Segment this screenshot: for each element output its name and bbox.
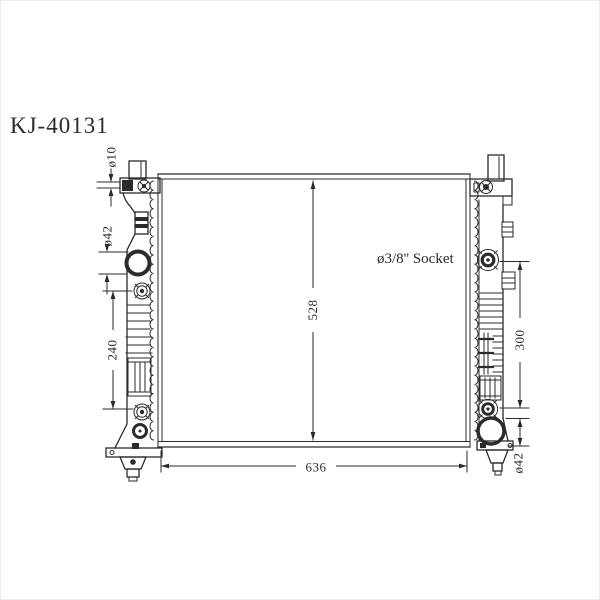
outlet-port-ring [478, 418, 504, 444]
dim-pin-diameter: ø10 [97, 147, 119, 207]
right-oil-cooler [480, 376, 501, 400]
left-upper-socket-fitting [134, 283, 150, 299]
inlet-port-ring [127, 252, 150, 275]
left-mounting-pin [129, 161, 146, 179]
dim-core-height-label: 528 [305, 300, 320, 321]
left-foot-drain-plug [106, 448, 162, 481]
right-tank [470, 155, 515, 475]
right-tank-ribs [479, 293, 502, 329]
radiator-technical-drawing: ø10 ø42 240 [0, 0, 600, 600]
left-upper-stub-fitting [135, 212, 148, 234]
socket-annotation: ø3/8'' Socket [377, 251, 454, 267]
dim-right-span-label: 300 [512, 330, 527, 351]
right-mounting-bracket [470, 155, 512, 205]
left-drain-sensor [132, 425, 147, 450]
right-lower-socket-fitting [478, 399, 497, 418]
socket-fitting-3-8 [478, 250, 499, 271]
part-number-label: KJ-40131 [10, 113, 109, 138]
dim-outlet-diameter: ø42 [506, 419, 529, 474]
right-mounting-pin [488, 155, 504, 181]
dim-overall-width-label: 636 [306, 460, 327, 475]
right-tank-center-detail [479, 333, 502, 374]
dim-left-span-label: 240 [105, 340, 120, 361]
left-bracket-screw-icon [138, 180, 150, 192]
left-mounting-bracket [120, 161, 160, 193]
dim-inlet-label: ø42 [100, 226, 115, 247]
right-bracket-screw-icon [480, 181, 493, 194]
dim-pin-label: ø10 [104, 147, 119, 168]
right-core-crimp-edge [475, 181, 479, 440]
right-tank-outline [503, 205, 508, 441]
right-mid-tab [502, 272, 515, 289]
left-tank-ribs [126, 305, 152, 353]
dim-core-height: 528 [304, 181, 321, 441]
left-oil-cooler [128, 358, 151, 396]
right-upper-tab [502, 222, 513, 237]
left-tank [106, 161, 162, 481]
radiator-diagram: ø10 ø42 240 [0, 0, 600, 600]
dim-outlet-label: ø42 [511, 453, 526, 474]
left-lower-socket-fitting [134, 404, 150, 420]
dim-inlet-diameter: ø42 [99, 226, 128, 295]
left-core-crimp-edge [150, 181, 154, 440]
dim-overall-width: 636 [161, 451, 467, 475]
